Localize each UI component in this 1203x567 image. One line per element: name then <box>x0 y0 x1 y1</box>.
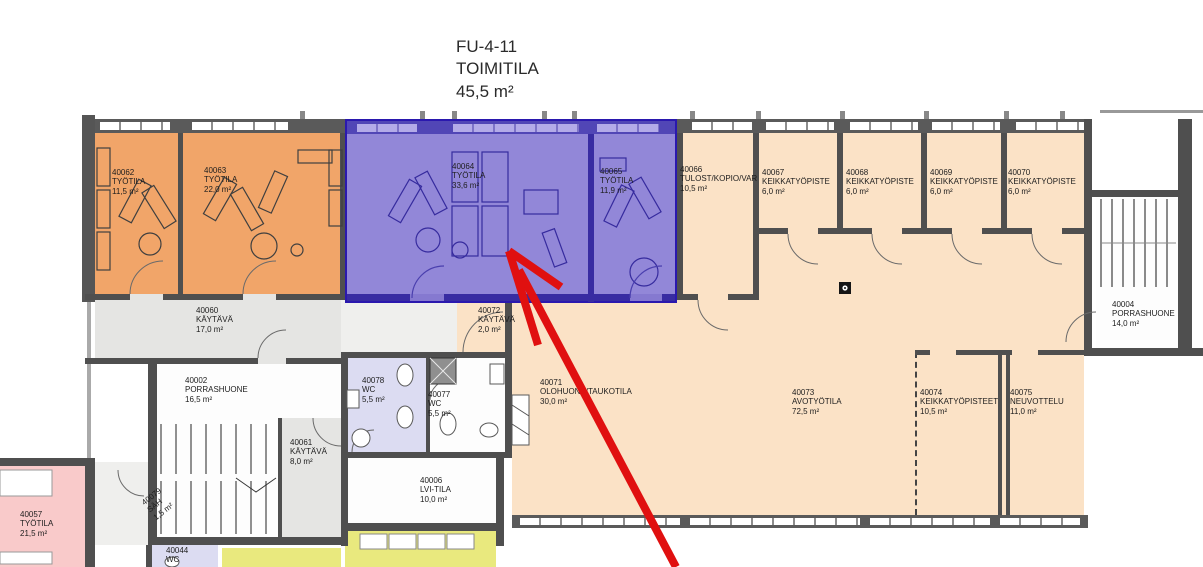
room-label-name: KÄYTÄVÄ <box>196 315 233 324</box>
room-40061 <box>282 418 341 537</box>
room-label-id: 40065 <box>600 167 633 176</box>
wall-segment <box>837 133 843 228</box>
room-label-id: 40057 <box>20 510 53 519</box>
room-label-id: 40006 <box>420 476 451 485</box>
wall-segment <box>300 111 305 119</box>
window-segment <box>870 518 990 525</box>
room-label-name: AVOTYÖTILA <box>792 397 842 406</box>
window-segment <box>100 122 170 130</box>
room-label-40066: 40066TULOST/KOPIO/VAR10,5 m² <box>680 165 757 193</box>
room-label-40070: 40070KEIKKATYÖPISTE6,0 m² <box>1008 168 1076 196</box>
room-label-name: LVI-TILA <box>420 485 451 494</box>
room-label-id: 40062 <box>112 168 145 177</box>
wall-segment <box>788 228 818 234</box>
wall-segment <box>1006 352 1010 515</box>
wall-segment <box>924 111 929 119</box>
window-segment <box>692 122 752 130</box>
highlighted-room-fu-4-11 <box>345 119 677 303</box>
wall-segment <box>496 458 504 546</box>
room-label-name: PORRASHUONE <box>1112 309 1175 318</box>
room-40078 <box>348 358 426 452</box>
wall-segment <box>542 111 547 119</box>
room-label-area: 14,0 m² <box>1112 319 1175 328</box>
room-40063 <box>180 133 340 294</box>
room-c60w <box>341 300 457 352</box>
room-yA <box>345 531 496 567</box>
room-beige-upper <box>757 234 1084 300</box>
wall-segment <box>85 358 341 364</box>
room-label-40068: 40068KEIKKATYÖPISTE6,0 m² <box>846 168 914 196</box>
room-label-40072: 40072KÄYTÄVÄ2,0 m² <box>478 306 515 334</box>
room-label-id: 40061 <box>290 438 327 447</box>
room-label-id: 40002 <box>185 376 248 385</box>
wall-segment <box>341 523 504 531</box>
room-label-id: 40044 <box>166 546 188 555</box>
room-label-id: 40064 <box>452 162 485 171</box>
room-label-id: 40069 <box>930 168 998 177</box>
room-label-id: 40072 <box>478 306 515 315</box>
wall-segment <box>148 537 341 545</box>
wall-segment <box>341 458 348 546</box>
room-label-name: TYÖTILA <box>112 177 145 186</box>
room-label-area: 5,5 m² <box>428 409 451 418</box>
wall-segment <box>341 452 512 458</box>
room-label-area: 10,5 m² <box>920 407 998 416</box>
window-segment <box>1016 122 1084 130</box>
room-label-name: KÄYTÄVÄ <box>478 315 515 324</box>
wall-segment <box>347 294 675 301</box>
wall-segment <box>258 358 286 364</box>
room-label-40065: 40065TYÖTILA11,9 m² <box>600 167 633 195</box>
wall-segment <box>952 228 982 234</box>
plan-title-code: FU-4-11 <box>456 36 539 58</box>
room-label-name: KEIKKATYÖPISTE <box>930 177 998 186</box>
room-label-id: 40068 <box>846 168 914 177</box>
wall-segment <box>1100 110 1203 113</box>
window-segment <box>850 122 918 130</box>
window-segment <box>192 122 288 130</box>
room-label-name: PORRASHUONE <box>185 385 248 394</box>
wall-segment <box>998 352 1002 515</box>
room-label-id: 40074 <box>920 388 998 397</box>
room-label-40060: 40060KÄYTÄVÄ17,0 m² <box>196 306 233 334</box>
room-label-40004: 40004PORRASHUONE14,0 m² <box>1112 300 1175 328</box>
room-label-area: 8,0 m² <box>290 457 327 466</box>
room-label-40078: 40078WC5,5 m² <box>362 376 385 404</box>
wall-segment <box>588 134 594 302</box>
wall-segment <box>921 133 927 228</box>
room-label-name: KÄYTÄVÄ <box>290 447 327 456</box>
wall-segment <box>872 228 902 234</box>
window-segment <box>932 122 1000 130</box>
room-label-id: 40073 <box>792 388 842 397</box>
room-label-40062: 40062TYÖTILA11,5 m² <box>112 168 145 196</box>
wall-segment <box>1032 228 1062 234</box>
room-yB <box>222 548 341 567</box>
wall-segment <box>178 133 183 294</box>
room-label-area: 21,5 m² <box>20 529 53 538</box>
floor-plan: FU-4-11 TOIMITILA 45,5 m² <box>0 0 1203 567</box>
window-segment <box>690 518 860 525</box>
room-label-name: OLOHUONE/TAUKOTILA <box>540 387 632 396</box>
room-label-area: 16,5 m² <box>185 395 248 404</box>
room-label-id: 40078 <box>362 376 385 385</box>
room-label-area: 5,5 m² <box>362 395 385 404</box>
room-label-id: 40070 <box>1008 168 1076 177</box>
room-label-id: 40071 <box>540 378 632 387</box>
wall-segment <box>1060 111 1065 119</box>
room-a79 <box>95 462 148 545</box>
room-label-name: KEIKKATYÖPISTE <box>1008 177 1076 186</box>
staircase-treads <box>160 424 275 474</box>
room-label-name: TYÖTILA <box>452 171 485 180</box>
wall-segment-dashed <box>915 352 917 515</box>
room-label-area: 6,0 m² <box>1008 187 1076 196</box>
room-label-area: 11,9 m² <box>600 186 633 195</box>
room-label-40069: 40069KEIKKATYÖPISTE6,0 m² <box>930 168 998 196</box>
room-label-40063: 40063TYÖTILA22,0 m² <box>204 166 237 194</box>
room-label-id: 40066 <box>680 165 757 174</box>
room-label-id: 40060 <box>196 306 233 315</box>
room-label-40071: 40071OLOHUONE/TAUKOTILA30,0 m² <box>540 378 632 406</box>
room-label-name: KEIKKATYÖPISTEET <box>920 397 998 406</box>
staircase-treads <box>1100 199 1176 287</box>
room-label-area: 2,0 m² <box>478 325 515 334</box>
plan-title-area: 45,5 m² <box>456 81 539 103</box>
room-label-40002: 40002PORRASHUONE16,5 m² <box>185 376 248 404</box>
wall-segment <box>130 294 163 300</box>
room-label-name: WC <box>166 555 188 564</box>
room-label-40067: 40067KEIKKATYÖPISTE6,0 m² <box>762 168 830 196</box>
room-label-name: TYÖTILA <box>20 519 53 528</box>
window-segment <box>520 518 680 525</box>
room-label-area: 11,0 m² <box>1010 407 1064 416</box>
wall-segment <box>698 294 728 300</box>
room-label-40057: 40057TYÖTILA21,5 m² <box>20 510 53 538</box>
room-label-id: 40077 <box>428 390 451 399</box>
wall-segment <box>1004 111 1009 119</box>
room-label-name: KEIKKATYÖPISTE <box>846 177 914 186</box>
window-segment <box>766 122 834 130</box>
room-label-area: 10,0 m² <box>420 495 451 504</box>
wall-segment <box>243 294 276 300</box>
room-label-40077: 40077WC5,5 m² <box>428 390 451 418</box>
wall-segment <box>87 302 91 466</box>
wall-segment <box>0 458 95 466</box>
wall-segment <box>1088 190 1186 197</box>
wall-segment <box>572 111 577 119</box>
room-label-40074: 40074KEIKKATYÖPISTEET10,5 m² <box>920 388 998 416</box>
room-label-40073: 40073AVOTYÖTILA72,5 m² <box>792 388 842 416</box>
room-label-40061: 40061KÄYTÄVÄ8,0 m² <box>290 438 327 466</box>
room-label-area: 11,5 m² <box>112 187 145 196</box>
room-label-40064: 40064TYÖTILA33,6 m² <box>452 162 485 190</box>
room-label-40075: 40075NEUVOTTELU11,0 m² <box>1010 388 1064 416</box>
room-label-id: 40004 <box>1112 300 1175 309</box>
room-label-id: 40067 <box>762 168 830 177</box>
wall-segment <box>1012 350 1038 355</box>
plan-title-name: TOIMITILA <box>456 58 539 80</box>
room-label-area: 6,0 m² <box>762 187 830 196</box>
room-label-name: WC <box>428 399 451 408</box>
wall-segment <box>452 111 457 119</box>
room-label-area: 10,5 m² <box>680 184 757 193</box>
wall-segment <box>420 111 425 119</box>
wall-segment <box>278 418 282 544</box>
wall-segment <box>690 111 695 119</box>
room-label-name: TULOST/KOPIO/VAR <box>680 174 757 183</box>
room-label-name: TYÖTILA <box>600 176 633 185</box>
room-label-id: 40075 <box>1010 388 1064 397</box>
wall-segment <box>753 133 759 300</box>
window-segment <box>453 124 579 132</box>
room-label-area: 6,0 m² <box>846 187 914 196</box>
room-label-id: 40063 <box>204 166 237 175</box>
room-label-area: 22,0 m² <box>204 185 237 194</box>
wall-segment <box>85 458 95 567</box>
room-label-area: 33,6 m² <box>452 181 485 190</box>
window-segment <box>357 124 417 132</box>
room-label-area: 6,0 m² <box>930 187 998 196</box>
staircase-treads <box>160 481 275 534</box>
room-label-name: KEIKKATYÖPISTE <box>762 177 830 186</box>
room-label-40044: 40044WC <box>166 546 188 565</box>
room-label-area: 17,0 m² <box>196 325 233 334</box>
wall-segment <box>677 133 683 294</box>
room-label-name: WC <box>362 385 385 394</box>
wall-segment <box>82 115 95 302</box>
door-opening <box>410 294 444 301</box>
wall-segment <box>341 352 348 458</box>
wall-segment <box>840 111 845 119</box>
wall-segment <box>1178 119 1192 356</box>
plan-title: FU-4-11 TOIMITILA 45,5 m² <box>456 36 539 103</box>
wall-segment <box>1084 119 1092 356</box>
room-label-40006: 40006LVI-TILA10,0 m² <box>420 476 451 504</box>
door-opening <box>630 294 662 301</box>
room-label-name: NEUVOTTELU <box>1010 397 1064 406</box>
room-40066 <box>683 133 753 294</box>
window-segment <box>597 124 659 132</box>
wall-segment <box>930 350 956 355</box>
wall-segment <box>756 111 761 119</box>
window-segment <box>1000 518 1080 525</box>
room-label-area: 72,5 m² <box>792 407 842 416</box>
room-40062 <box>95 133 180 294</box>
wall-segment <box>1001 133 1007 228</box>
wall-segment <box>146 545 152 567</box>
room-label-name: TYÖTILA <box>204 175 237 184</box>
room-label-area: 30,0 m² <box>540 397 632 406</box>
